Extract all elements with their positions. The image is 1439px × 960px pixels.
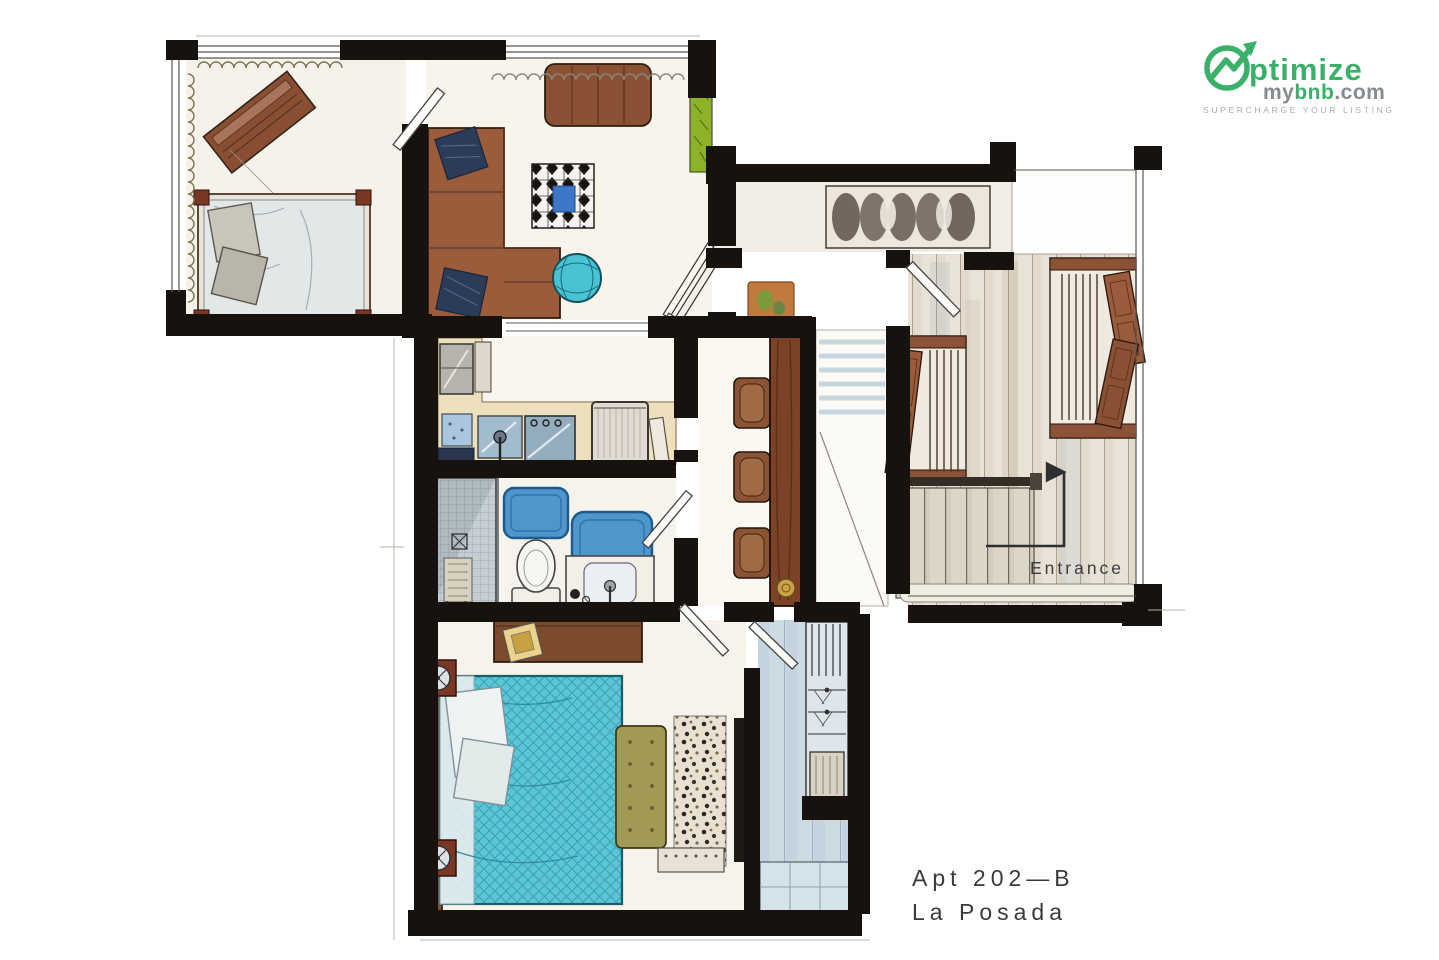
logo: ptimize mybnb.com SUPERCHARGE YOUR LISTI… (1203, 41, 1395, 115)
caption-line2: La Posada (912, 899, 1067, 925)
tall-cabinet (475, 342, 491, 392)
logo-sub-bnb: bnb (1294, 81, 1334, 104)
floor-plan-drawing: Entrance (0, 0, 1439, 960)
radiator-bench (826, 186, 990, 248)
bath-mat-1 (504, 488, 568, 538)
shower (432, 478, 498, 608)
leopard-rug (674, 716, 726, 866)
dishwasher (592, 402, 648, 464)
bedpost (194, 190, 209, 205)
wardrobe-right (1050, 258, 1145, 438)
bar-counter (770, 334, 802, 606)
logo-sub-my: my (1263, 81, 1294, 104)
entrance-label: Entrance (1030, 558, 1124, 578)
decor-plate (777, 579, 795, 597)
bar-stool (734, 378, 770, 428)
coffee-table-center (553, 186, 575, 212)
bed-1 (420, 660, 622, 912)
floor-plan-page: Entrance (0, 0, 1439, 960)
radiator (658, 848, 724, 872)
stairwell-landing (816, 330, 888, 606)
desk (494, 616, 642, 662)
bed-1-pillow-2 (454, 738, 515, 805)
bar-stool (734, 528, 770, 578)
window-sill-bench (900, 584, 1138, 602)
throw-pillow-2 (436, 268, 488, 318)
bedpost (356, 190, 371, 205)
stair-handrail (890, 477, 1038, 486)
bar-stool (734, 452, 770, 502)
cooktop (442, 414, 472, 446)
caption-block: Apt 202—B La Posada (912, 865, 1075, 925)
staircase (890, 473, 1042, 598)
recess-nook (1012, 170, 1136, 254)
wall-tv (734, 718, 745, 862)
balcony-glazing (760, 862, 850, 912)
laundry-basket (810, 752, 844, 798)
foot-bench (616, 726, 666, 848)
bed-2 (194, 190, 371, 325)
vanity-sink (566, 556, 654, 608)
round-pouf (553, 254, 601, 302)
logo-tagline: SUPERCHARGE YOUR LISTING (1203, 105, 1395, 115)
logo-word-sub: mybnb.com (1263, 81, 1385, 104)
logo-sub-domain: .com (1334, 81, 1385, 104)
coffee-table (532, 164, 594, 228)
fridge (440, 344, 473, 394)
stove-oven (525, 416, 575, 463)
drying-rack (806, 622, 848, 802)
newel-post (1030, 473, 1042, 490)
caption-line1: Apt 202—B (912, 865, 1075, 891)
